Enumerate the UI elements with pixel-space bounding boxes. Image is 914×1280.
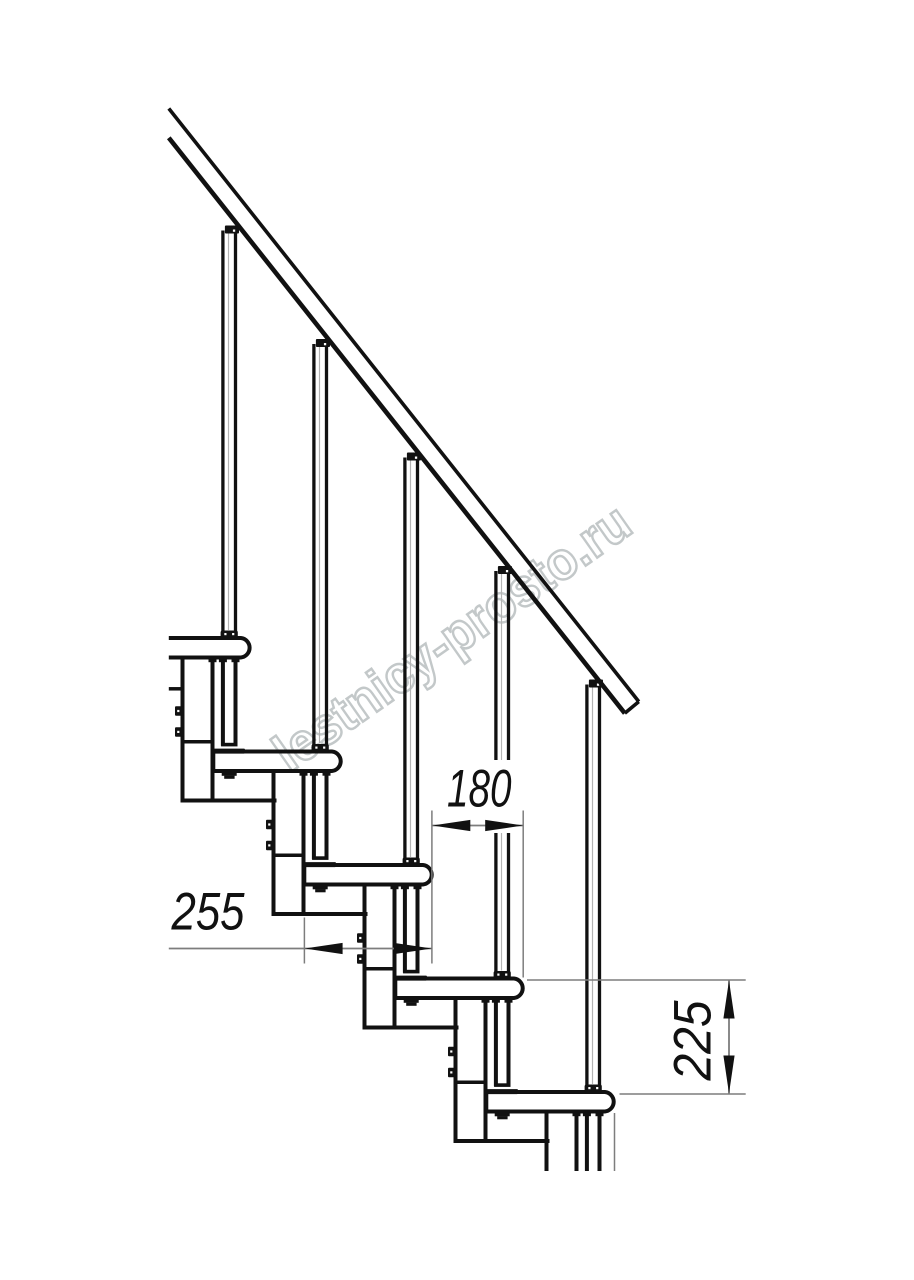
svg-text:225: 225 xyxy=(664,1000,723,1081)
svg-text:255: 255 xyxy=(171,882,245,941)
svg-text:180: 180 xyxy=(447,759,512,818)
